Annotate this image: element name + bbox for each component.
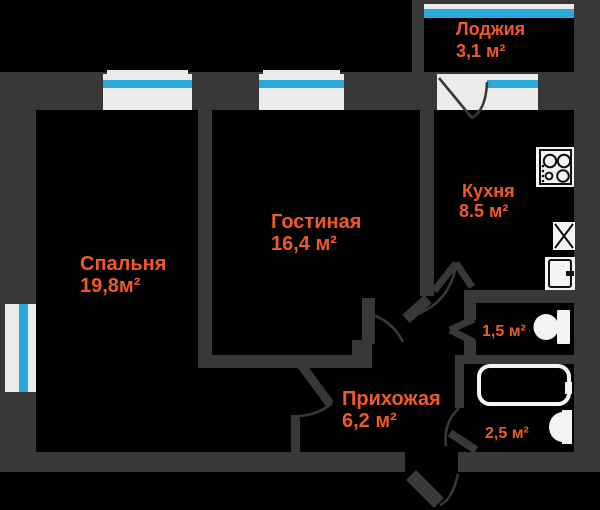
room-label-kitchen: Кухня <box>462 181 515 201</box>
room-area-loggia: 3,1 м² <box>456 41 505 61</box>
entrance-door-leaf <box>411 475 439 503</box>
bathroom-door-leaf <box>450 433 476 450</box>
wall-wc-left-stub-top <box>464 290 476 320</box>
room-label-loggia: Лоджия <box>456 19 525 39</box>
wall-loggia-left <box>412 0 424 74</box>
room-area-kitchen: 8.5 м² <box>459 201 508 221</box>
wall-living-bottom <box>198 355 368 368</box>
wall-bedroom-door-jamb <box>291 415 300 452</box>
wall-living-bottom-step <box>352 340 372 368</box>
bedroom-door-leaf <box>299 362 330 404</box>
wall-bathroom-left <box>455 355 464 408</box>
wall-loggia-top <box>412 0 583 4</box>
room-area-bedroom: 19,8м² <box>80 275 141 297</box>
window-bedroom-top-glass <box>103 80 192 88</box>
entrance-door-arc <box>440 474 458 505</box>
window-loggia <box>424 4 574 9</box>
floorplan: Лоджия 3,1 м² Кухня 8.5 м² Гостиная 16,4… <box>0 0 600 510</box>
wall-right <box>574 0 600 472</box>
wall-bottom-left <box>0 452 405 472</box>
room-area-living: 16,4 м² <box>271 233 337 255</box>
room-area-hallway: 6,2 м² <box>342 410 397 432</box>
window-bedroom-left-glass <box>19 304 28 392</box>
wall-kitchen-left <box>420 110 434 296</box>
toilet-icon <box>534 310 571 344</box>
room-area-bathroom: 2,5 м² <box>485 425 529 442</box>
stove-icon <box>536 147 574 187</box>
wc-door-jamb-b <box>450 330 474 342</box>
kitchen-door-jamb-b <box>456 263 472 287</box>
wall-wc-bathroom-divider <box>455 355 600 364</box>
balcony-window-glass <box>487 80 538 88</box>
window-living <box>259 74 344 110</box>
wall-bedroom-living-divider <box>198 110 212 368</box>
fridge-icon <box>545 257 575 290</box>
room-area-wc: 1,5 м² <box>482 323 526 340</box>
wall-left <box>0 72 36 472</box>
window-bedroom-top <box>103 74 192 110</box>
window-living-glass <box>259 80 344 88</box>
wall-wc-top <box>464 290 600 303</box>
window-loggia-glass <box>424 9 574 18</box>
room-label-living: Гостиная <box>271 211 361 233</box>
wall-top <box>0 72 412 110</box>
room-label-hallway: Прихожая <box>342 388 441 410</box>
washbasin-icon <box>549 410 572 444</box>
sink-icon <box>553 222 575 250</box>
room-label-bedroom: Спальня <box>80 253 166 275</box>
floorplan-svg: Лоджия 3,1 м² Кухня 8.5 м² Гостиная 16,4… <box>0 0 600 510</box>
wall-hallway-left-stub <box>362 298 375 344</box>
bathtub-icon <box>479 366 572 404</box>
